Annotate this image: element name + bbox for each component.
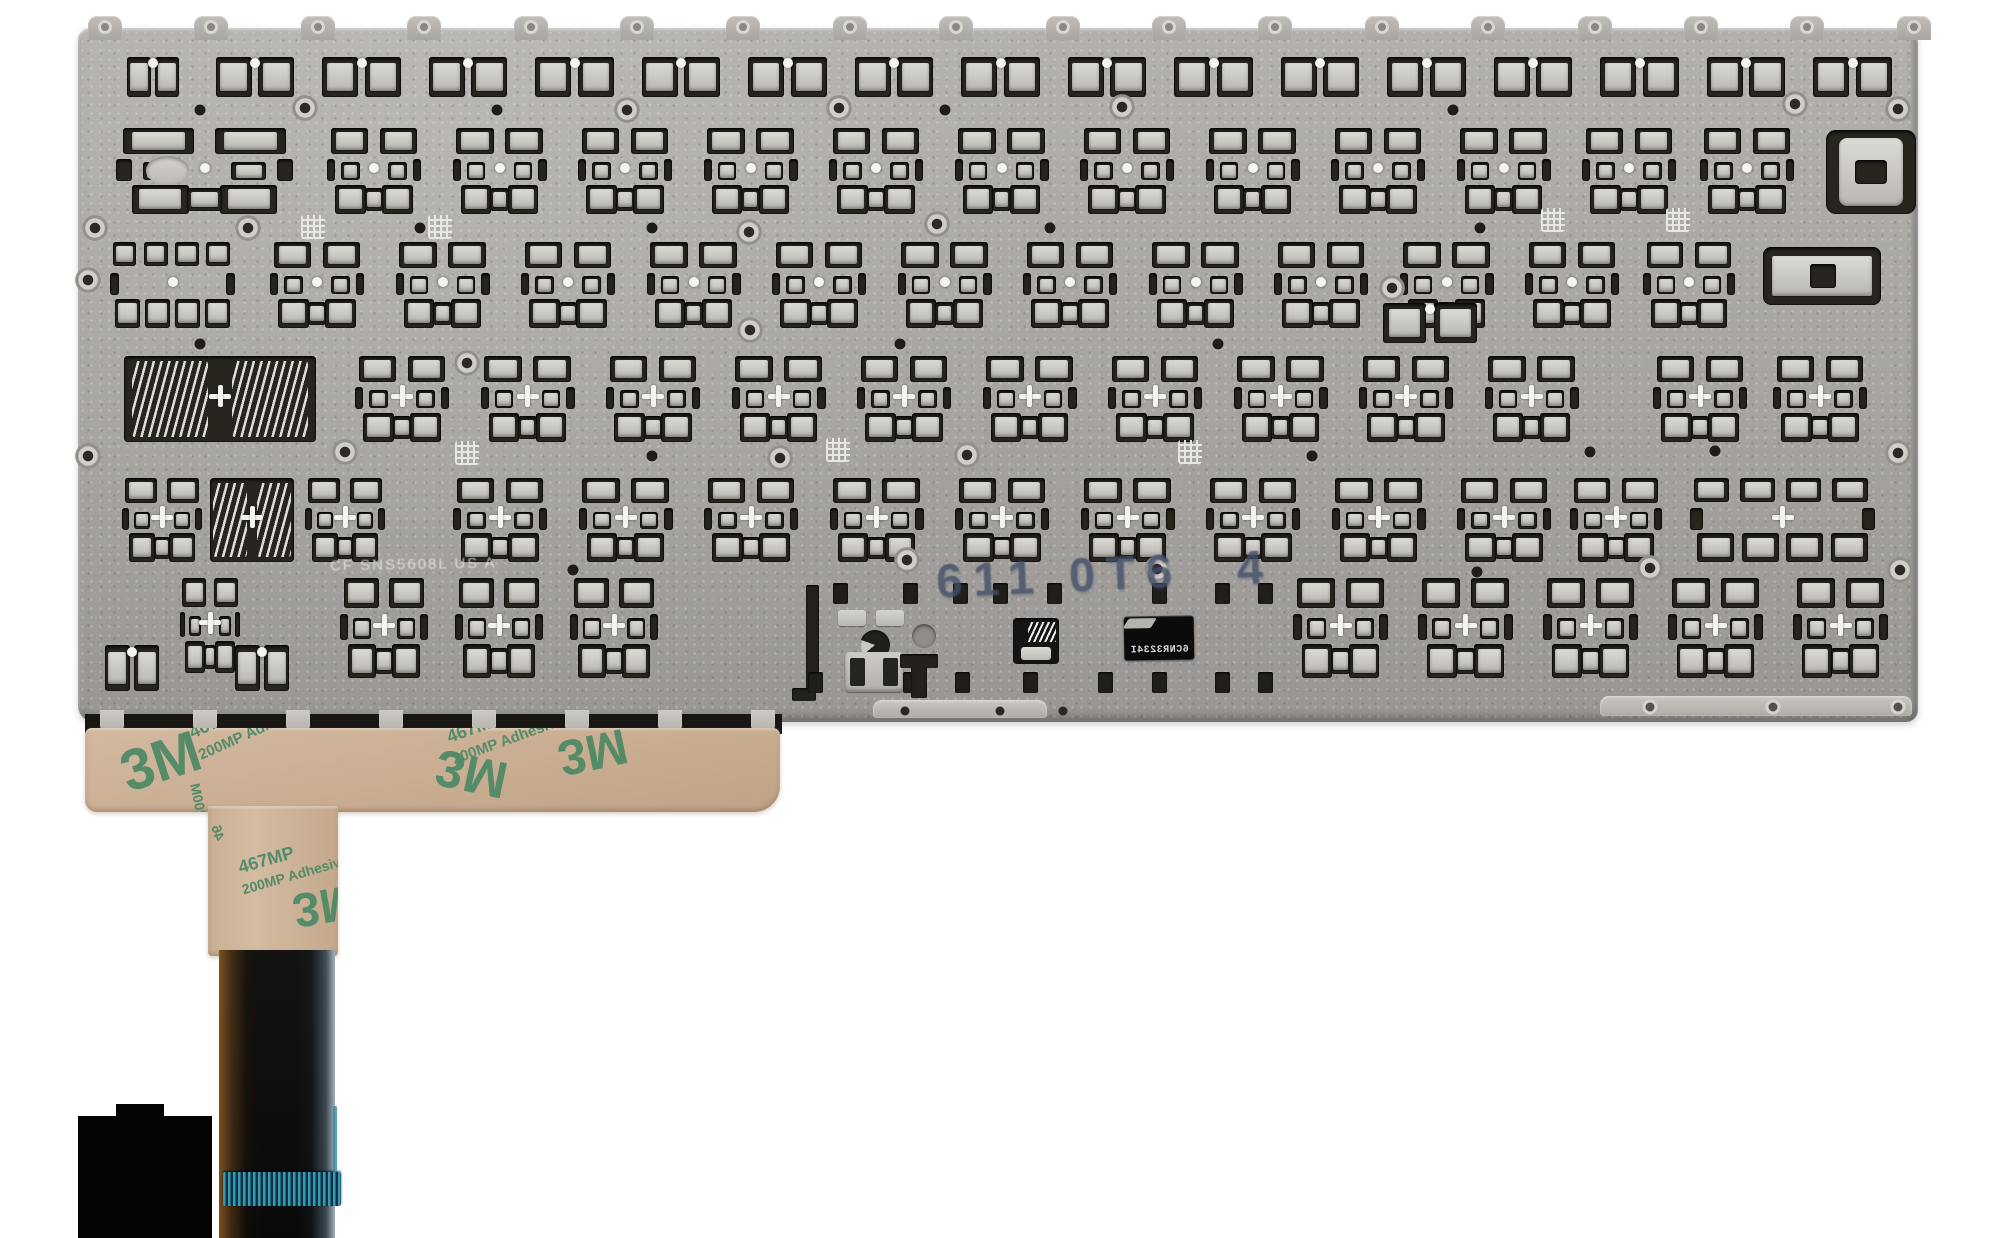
latch-tab: [846, 165, 860, 177]
key-cutout: [392, 644, 420, 678]
key-cutout: [1529, 242, 1567, 268]
key-cutout: [1422, 578, 1460, 608]
latch-tab: [831, 303, 853, 323]
key-cutout: [467, 512, 486, 530]
screw-boss: [954, 442, 980, 468]
key-cutout: [867, 188, 886, 210]
key-cutout: [1008, 478, 1046, 503]
latch-tab: [282, 303, 304, 323]
center-hole: [168, 277, 178, 287]
key-cutout: [1704, 128, 1742, 154]
center-hole: [1499, 163, 1509, 173]
latch-tab: [1832, 417, 1854, 437]
key-mechanism-std: [983, 356, 1077, 442]
key-cutout: [1392, 162, 1411, 180]
latch-tab: [1476, 583, 1504, 603]
screw-boss: [1109, 94, 1135, 120]
latch-tab: [748, 393, 762, 405]
key-cutout: [950, 242, 988, 268]
key-cutout: [1578, 242, 1616, 268]
key-cutout: [1724, 644, 1754, 678]
latch-tab: [636, 482, 664, 499]
latch-tab: [287, 279, 301, 291]
key-cutout: [542, 390, 561, 408]
top-tab: [1790, 16, 1824, 40]
latch-tab: [1125, 393, 1139, 405]
small-cutout: [808, 672, 823, 693]
key-cutout: [1749, 57, 1785, 97]
latch-tab: [1493, 360, 1521, 378]
latch-tab: [1646, 165, 1660, 177]
top-tab: [1471, 16, 1505, 40]
key-cutout: [504, 578, 539, 608]
latch-tab: [1711, 63, 1738, 91]
latch-tab: [1831, 360, 1859, 378]
key-cutout: [825, 242, 863, 268]
center-cross-hole: [615, 506, 637, 528]
key-cutout: [1142, 512, 1161, 530]
latch-tab: [1328, 63, 1355, 91]
latch-tab: [1440, 309, 1472, 337]
center-cross-hole: [241, 506, 263, 528]
key-cutout: [579, 508, 587, 530]
key-mechanism-trace: [208, 478, 296, 562]
key-cutout: [1414, 276, 1433, 294]
key-cutout: [1095, 512, 1114, 530]
latch-tab: [1283, 246, 1311, 264]
stamp-left: 611 0T6: [935, 544, 1184, 608]
key-cutout: [576, 299, 606, 328]
key-cutout: [1643, 162, 1662, 180]
latch-tab: [1263, 132, 1291, 150]
rivet-dot: [415, 223, 426, 234]
latch-tab: [812, 306, 826, 321]
key-cutout: [1703, 276, 1721, 294]
key-cutout: [884, 185, 914, 214]
latch-tab: [220, 63, 247, 91]
rivet-dot: [195, 339, 206, 350]
latch-tab: [1019, 514, 1033, 526]
key-cutout: [1122, 390, 1141, 408]
key-cutout: [1697, 533, 1734, 562]
latch-tab: [385, 132, 413, 150]
key-cutout: [582, 128, 620, 154]
key-cutout: [175, 242, 199, 266]
latch-tab: [664, 360, 692, 378]
key-cutout: [830, 508, 838, 530]
latch-tab: [1534, 246, 1562, 264]
key-mechanism-clip: [1385, 54, 1469, 100]
top-tab: [1365, 16, 1399, 40]
latch-tab: [1712, 417, 1734, 437]
latch-tab: [1702, 538, 1729, 557]
center-cross-hole: [1242, 506, 1264, 528]
key-mechanism-clip: [1172, 54, 1256, 100]
latch-tab: [637, 189, 659, 209]
latch-tab: [1813, 420, 1827, 435]
key-cutout: [833, 478, 871, 503]
center-hole: [250, 58, 260, 68]
key-cutout: [692, 387, 700, 409]
top-tab: [1578, 16, 1612, 40]
key-cutout: [1546, 390, 1565, 408]
latch-tab: [459, 279, 473, 291]
latch-tab: [1014, 189, 1036, 209]
key-cutout: [1661, 413, 1691, 442]
key-cutout: [535, 614, 543, 640]
latch-tab: [1521, 514, 1535, 526]
latch-tab: [1709, 132, 1737, 150]
latch-tab: [1242, 360, 1270, 378]
top-tab: [407, 16, 441, 40]
latch-tab: [344, 165, 358, 177]
latch-tab: [1285, 63, 1312, 91]
key-cutout: [614, 413, 644, 442]
latch-tab: [795, 393, 809, 405]
key-cutout: [508, 533, 538, 562]
center-cross-hole: [1493, 506, 1515, 528]
latch-tab: [1165, 279, 1179, 291]
center-cross-hole: [991, 506, 1013, 528]
key-cutout: [1432, 618, 1451, 639]
key-cutout: [707, 128, 745, 154]
key-cutout: [481, 273, 489, 295]
latch-tab: [116, 246, 134, 262]
key-cutout: [644, 416, 663, 438]
key-cutout: [1194, 387, 1202, 409]
screw-boss: [924, 211, 950, 237]
key-cutout: [1163, 413, 1193, 442]
key-cutout: [1335, 276, 1354, 294]
key-cutout: [308, 302, 327, 324]
latch-tab: [147, 246, 165, 262]
center-hole: [689, 277, 699, 287]
latch-tab: [1542, 360, 1570, 378]
key-cutout: [622, 644, 650, 678]
tab-hole: [311, 20, 325, 34]
center-hole: [1315, 58, 1325, 68]
latch-tab: [1680, 649, 1703, 672]
latch-tab: [1764, 165, 1778, 177]
key-cutout: [1859, 387, 1867, 409]
key-cutout: [1471, 162, 1490, 180]
key-cutout: [1456, 648, 1475, 674]
latch-tab: [1747, 538, 1774, 557]
latch-tab: [1208, 303, 1230, 323]
latch-tab: [1591, 132, 1619, 150]
key-cutout: [1802, 644, 1832, 678]
key-cutout: [468, 618, 486, 639]
key-cutout: [1237, 356, 1275, 382]
key-mechanism-std: [1485, 356, 1579, 442]
key-mechanism-std: [1582, 128, 1676, 214]
key-cutout: [732, 387, 740, 409]
latch-tab: [859, 63, 886, 91]
key-cutout: [264, 645, 289, 691]
key-cutout: [1807, 618, 1826, 639]
key-cutout: [897, 57, 933, 97]
key-cutout: [1596, 162, 1615, 180]
latch-tab: [838, 482, 866, 499]
center-hole: [996, 58, 1006, 68]
key-cutout: [1360, 273, 1368, 295]
latch-tab: [1782, 360, 1810, 378]
small-cutout: [1098, 672, 1113, 693]
latch-tab: [511, 649, 532, 672]
key-mechanism-std: [578, 128, 672, 214]
latch-tab: [1754, 63, 1781, 91]
key-cutout: [664, 508, 672, 530]
latch-tab: [1223, 514, 1237, 526]
key-mechanism-clip: [959, 54, 1043, 100]
key-mechanism-std: [453, 478, 547, 562]
ribbon-edge-highlight: [333, 1106, 337, 1172]
latch-tab: [512, 538, 534, 557]
latch-tab: [1392, 63, 1419, 91]
key-cutout: [1016, 162, 1035, 180]
center-hole: [1425, 304, 1435, 314]
latch-tab: [493, 540, 507, 555]
latch-tab: [585, 279, 599, 291]
key-mechanism-std: [955, 128, 1049, 214]
latch-tab: [1662, 360, 1690, 378]
key-cutout: [1727, 273, 1735, 295]
latch-tab: [1810, 621, 1824, 635]
key-cutout: [1786, 533, 1823, 562]
latch-tab: [1117, 360, 1145, 378]
center-cross-hole: [1605, 506, 1627, 528]
key-cutout: [1339, 185, 1369, 214]
key-cutout: [514, 512, 533, 530]
latch-tab: [585, 621, 598, 635]
key-cutout: [453, 159, 461, 181]
key-cutout: [867, 537, 886, 559]
screw-boss: [82, 215, 108, 241]
key-cutout: [1690, 508, 1703, 530]
key-cutout: [1879, 614, 1888, 640]
center-hole: [1191, 277, 1201, 287]
key-cutout: [357, 512, 373, 530]
latch-tab: [1583, 652, 1597, 670]
center-hole: [570, 58, 580, 68]
small-cutout: [1023, 672, 1038, 693]
key-cutout: [413, 159, 421, 181]
latch-tab: [1699, 246, 1726, 264]
latch-tab: [533, 303, 555, 323]
key-cutout: [1493, 413, 1523, 442]
center-hole: [783, 58, 793, 68]
key-cutout: [769, 416, 788, 438]
key-cutout: [1494, 188, 1513, 210]
latch-tab: [1607, 621, 1621, 635]
rivet-dot: [1448, 105, 1459, 116]
latch-tab: [1302, 583, 1330, 603]
key-cutout: [1471, 578, 1509, 608]
latch-tab: [1344, 538, 1366, 557]
key-cutout: [1811, 416, 1830, 438]
latch-tab: [359, 514, 371, 526]
latch-tab: [404, 246, 432, 264]
key-mechanism-std: [122, 478, 202, 562]
latch-tab: [1144, 514, 1158, 526]
latch-tab: [334, 279, 348, 291]
latch-tab: [1314, 306, 1328, 321]
key-cutout: [1068, 387, 1076, 409]
small-cutout: [955, 672, 970, 693]
key-cutout: [507, 644, 535, 678]
vent-mark: [1666, 208, 1690, 232]
key-cutout: [684, 57, 720, 97]
key-cutout: [1267, 162, 1286, 180]
latch-tab: [1665, 417, 1687, 437]
key-cutout: [1345, 162, 1364, 180]
key-cutout: [1297, 578, 1335, 608]
key-cutout: [664, 159, 672, 181]
key-cutout: [1403, 242, 1441, 268]
latch-tab: [367, 192, 381, 207]
key-cutout: [325, 299, 355, 328]
center-hole: [463, 58, 473, 68]
latch-tab: [1395, 165, 1409, 177]
key-mechanism-std: [1457, 478, 1551, 562]
latch-tab: [372, 393, 386, 405]
latch-tab: [1732, 621, 1746, 635]
key-cutout: [1259, 478, 1297, 503]
key-cutout: [214, 578, 238, 607]
key-cutout: [1714, 390, 1733, 408]
key-cutout: [206, 242, 230, 266]
screw-boss: [454, 350, 480, 376]
latch-tab: [1837, 393, 1851, 405]
latch-tab: [1167, 417, 1189, 437]
key-cutout: [741, 188, 760, 210]
rivet-dot: [1045, 223, 1056, 234]
key-cutout: [1691, 416, 1710, 438]
key-cutout: [1586, 276, 1605, 294]
key-cutout: [1329, 299, 1359, 328]
key-cutout: [1611, 273, 1619, 295]
key-cutout: [607, 273, 615, 295]
latch-tab: [607, 652, 620, 670]
latch-tab: [1250, 393, 1264, 405]
latch-tab: [646, 63, 673, 91]
latch-tab: [1542, 279, 1556, 291]
center-cross-hole: [373, 614, 395, 636]
key-cutout: [833, 128, 871, 154]
band-ring: [1766, 700, 1781, 715]
key-cutout: [704, 508, 712, 530]
key-cutout: [1016, 512, 1035, 530]
latch-tab: [268, 652, 286, 683]
key-cutout: [616, 537, 635, 559]
key-cutout: [1570, 508, 1578, 530]
latch-tab: [1705, 279, 1719, 291]
screw-boss: [292, 95, 318, 121]
key-cutout: [1386, 185, 1416, 214]
top-tab: [1684, 16, 1718, 40]
key-cutout: [1849, 644, 1879, 678]
latch-tab: [279, 246, 307, 264]
latch-tab: [1677, 583, 1705, 603]
key-cutout: [1323, 57, 1359, 97]
center-cross-hole: [740, 506, 762, 528]
key-cutout: [1637, 185, 1667, 214]
center-hole: [312, 277, 322, 287]
key-cutout: [274, 242, 312, 268]
latch-tab: [704, 246, 732, 264]
latch-tab: [938, 306, 952, 321]
key-cutout: [110, 273, 119, 295]
key-cutout: [1846, 578, 1884, 608]
screw-boss: [1379, 275, 1405, 301]
latch-tab: [1376, 393, 1390, 405]
key-cutout: [1653, 387, 1661, 409]
latch-tab: [1353, 649, 1376, 672]
key-cutout: [1542, 159, 1550, 181]
key-cutout: [337, 537, 353, 559]
key-cutout: [308, 478, 340, 503]
latch-tab: [1708, 652, 1722, 670]
key-cutout: [113, 242, 137, 266]
latch-tab: [497, 393, 511, 405]
latch-tab: [1791, 538, 1818, 557]
latch-tab: [1399, 420, 1413, 435]
key-cutout: [786, 276, 805, 294]
key-cutout: [634, 533, 664, 562]
latch-tab: [208, 303, 227, 323]
latch-tab: [595, 165, 609, 177]
flex-circuit-traces: [132, 361, 208, 437]
key-cutout: [986, 356, 1024, 382]
key-cutout: [578, 159, 586, 181]
key-cutout: [1278, 242, 1316, 268]
key-cutout: [592, 162, 611, 180]
key-cutout: [1292, 508, 1300, 530]
gray-circle-hole: [912, 624, 936, 648]
key-cutout: [958, 128, 996, 154]
key-cutout: [1647, 242, 1684, 268]
key-cutout: [969, 512, 988, 530]
latch-tab: [906, 246, 934, 264]
key-cutout: [1427, 644, 1457, 678]
key-mechanism-trace: [120, 356, 320, 442]
key-cutout: [380, 128, 418, 154]
latch-tab: [1698, 482, 1724, 498]
center-hole: [1741, 58, 1751, 68]
key-cutout: [359, 356, 397, 382]
key-cutout: [1331, 648, 1350, 674]
key-cutout: [1522, 416, 1541, 438]
key-cutout: [169, 533, 195, 562]
latch-tab: [1790, 393, 1804, 405]
latch-tab: [538, 360, 566, 378]
key-cutout: [1286, 356, 1324, 382]
tab-hole: [736, 20, 750, 34]
latch-tab: [209, 246, 227, 262]
latch-tab: [1120, 192, 1134, 207]
latch-tab: [544, 393, 558, 405]
key-cutout: [457, 276, 476, 294]
key-cutout: [578, 57, 614, 97]
key-cutout: [1312, 302, 1331, 324]
key-cutout: [495, 390, 514, 408]
key-cutout: [791, 57, 827, 97]
key-cutout: [748, 57, 784, 97]
key-cutout: [1004, 57, 1040, 97]
key-cutout: [490, 648, 508, 674]
light-tab: [876, 610, 904, 626]
latch-tab: [463, 583, 489, 603]
